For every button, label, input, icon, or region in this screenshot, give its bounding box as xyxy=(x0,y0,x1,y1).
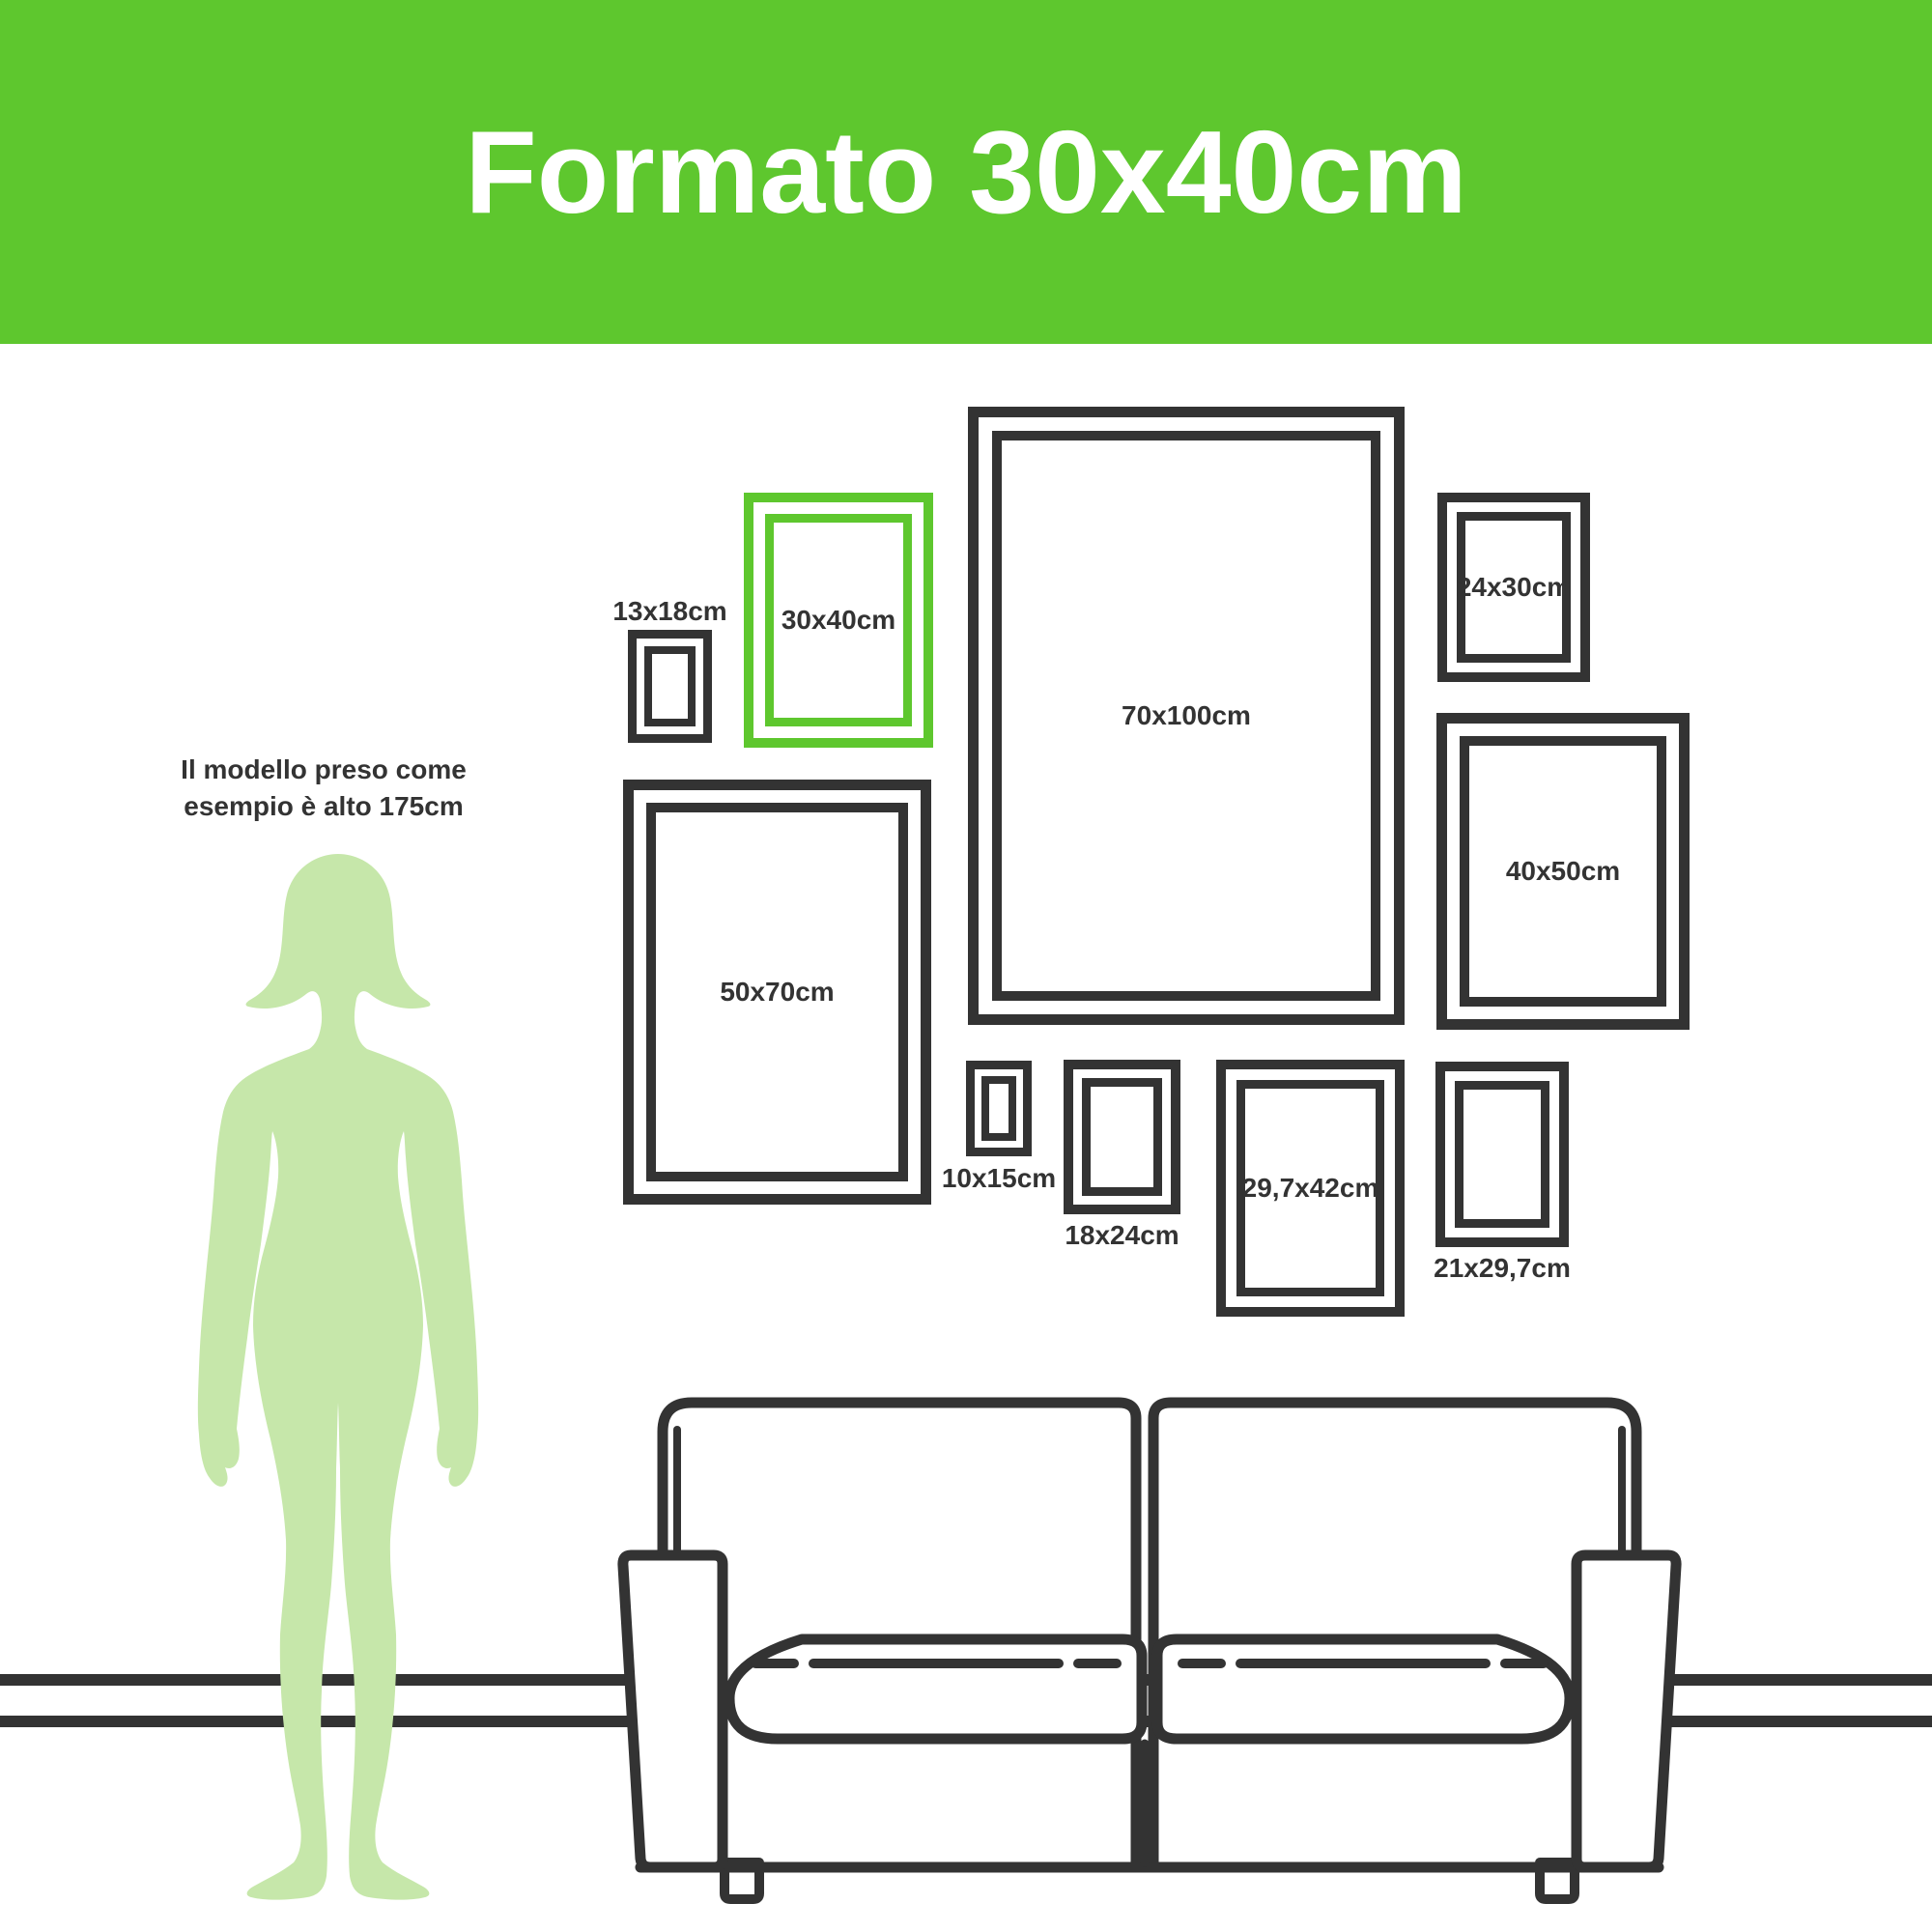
frame-10x15: 10x15cm xyxy=(966,1061,1032,1156)
frame-18x24: 18x24cm xyxy=(1064,1060,1180,1214)
frame-30x40-highlighted: 30x40cm xyxy=(744,493,933,748)
frame-50x70-label: 50x70cm xyxy=(634,790,921,1194)
frame-24x30: 24x30cm xyxy=(1437,493,1590,682)
frame-40x50: 40x50cm xyxy=(1436,713,1690,1030)
frame-21x29-7-inner xyxy=(1455,1081,1549,1228)
frame-18x24-label: 18x24cm xyxy=(1065,1220,1179,1251)
frame-24x30-label: 24x30cm xyxy=(1447,502,1580,672)
infographic-canvas: Formato 30x40cm Il modello preso come es… xyxy=(0,0,1932,1932)
page-title: Formato 30x40cm xyxy=(465,104,1466,240)
female-silhouette-icon xyxy=(193,850,483,1903)
frame-18x24-inner xyxy=(1082,1078,1162,1196)
frame-70x100: 70x100cm xyxy=(968,407,1405,1025)
frame-10x15-inner xyxy=(981,1076,1016,1141)
header-band: Formato 30x40cm xyxy=(0,0,1932,344)
frame-29-7x42: 29,7x42cm xyxy=(1216,1060,1405,1317)
frame-13x18: 13x18cm xyxy=(628,630,712,743)
scale-note: Il modello preso come esempio è alto 175… xyxy=(164,752,483,825)
frame-13x18-label: 13x18cm xyxy=(612,596,726,627)
frame-21x29-7: 21x29,7cm xyxy=(1435,1062,1569,1247)
frame-29-7x42-label: 29,7x42cm xyxy=(1226,1069,1395,1307)
frame-13x18-inner xyxy=(644,646,696,726)
frame-50x70: 50x70cm xyxy=(623,780,931,1205)
frame-21x29-7-label: 21x29,7cm xyxy=(1434,1253,1571,1284)
frame-40x50-label: 40x50cm xyxy=(1447,724,1679,1019)
frame-30x40-label: 30x40cm xyxy=(753,502,923,738)
sofa-illustration xyxy=(580,1372,1739,1913)
frame-10x15-label: 10x15cm xyxy=(942,1163,1056,1194)
frame-70x100-label: 70x100cm xyxy=(979,417,1394,1014)
